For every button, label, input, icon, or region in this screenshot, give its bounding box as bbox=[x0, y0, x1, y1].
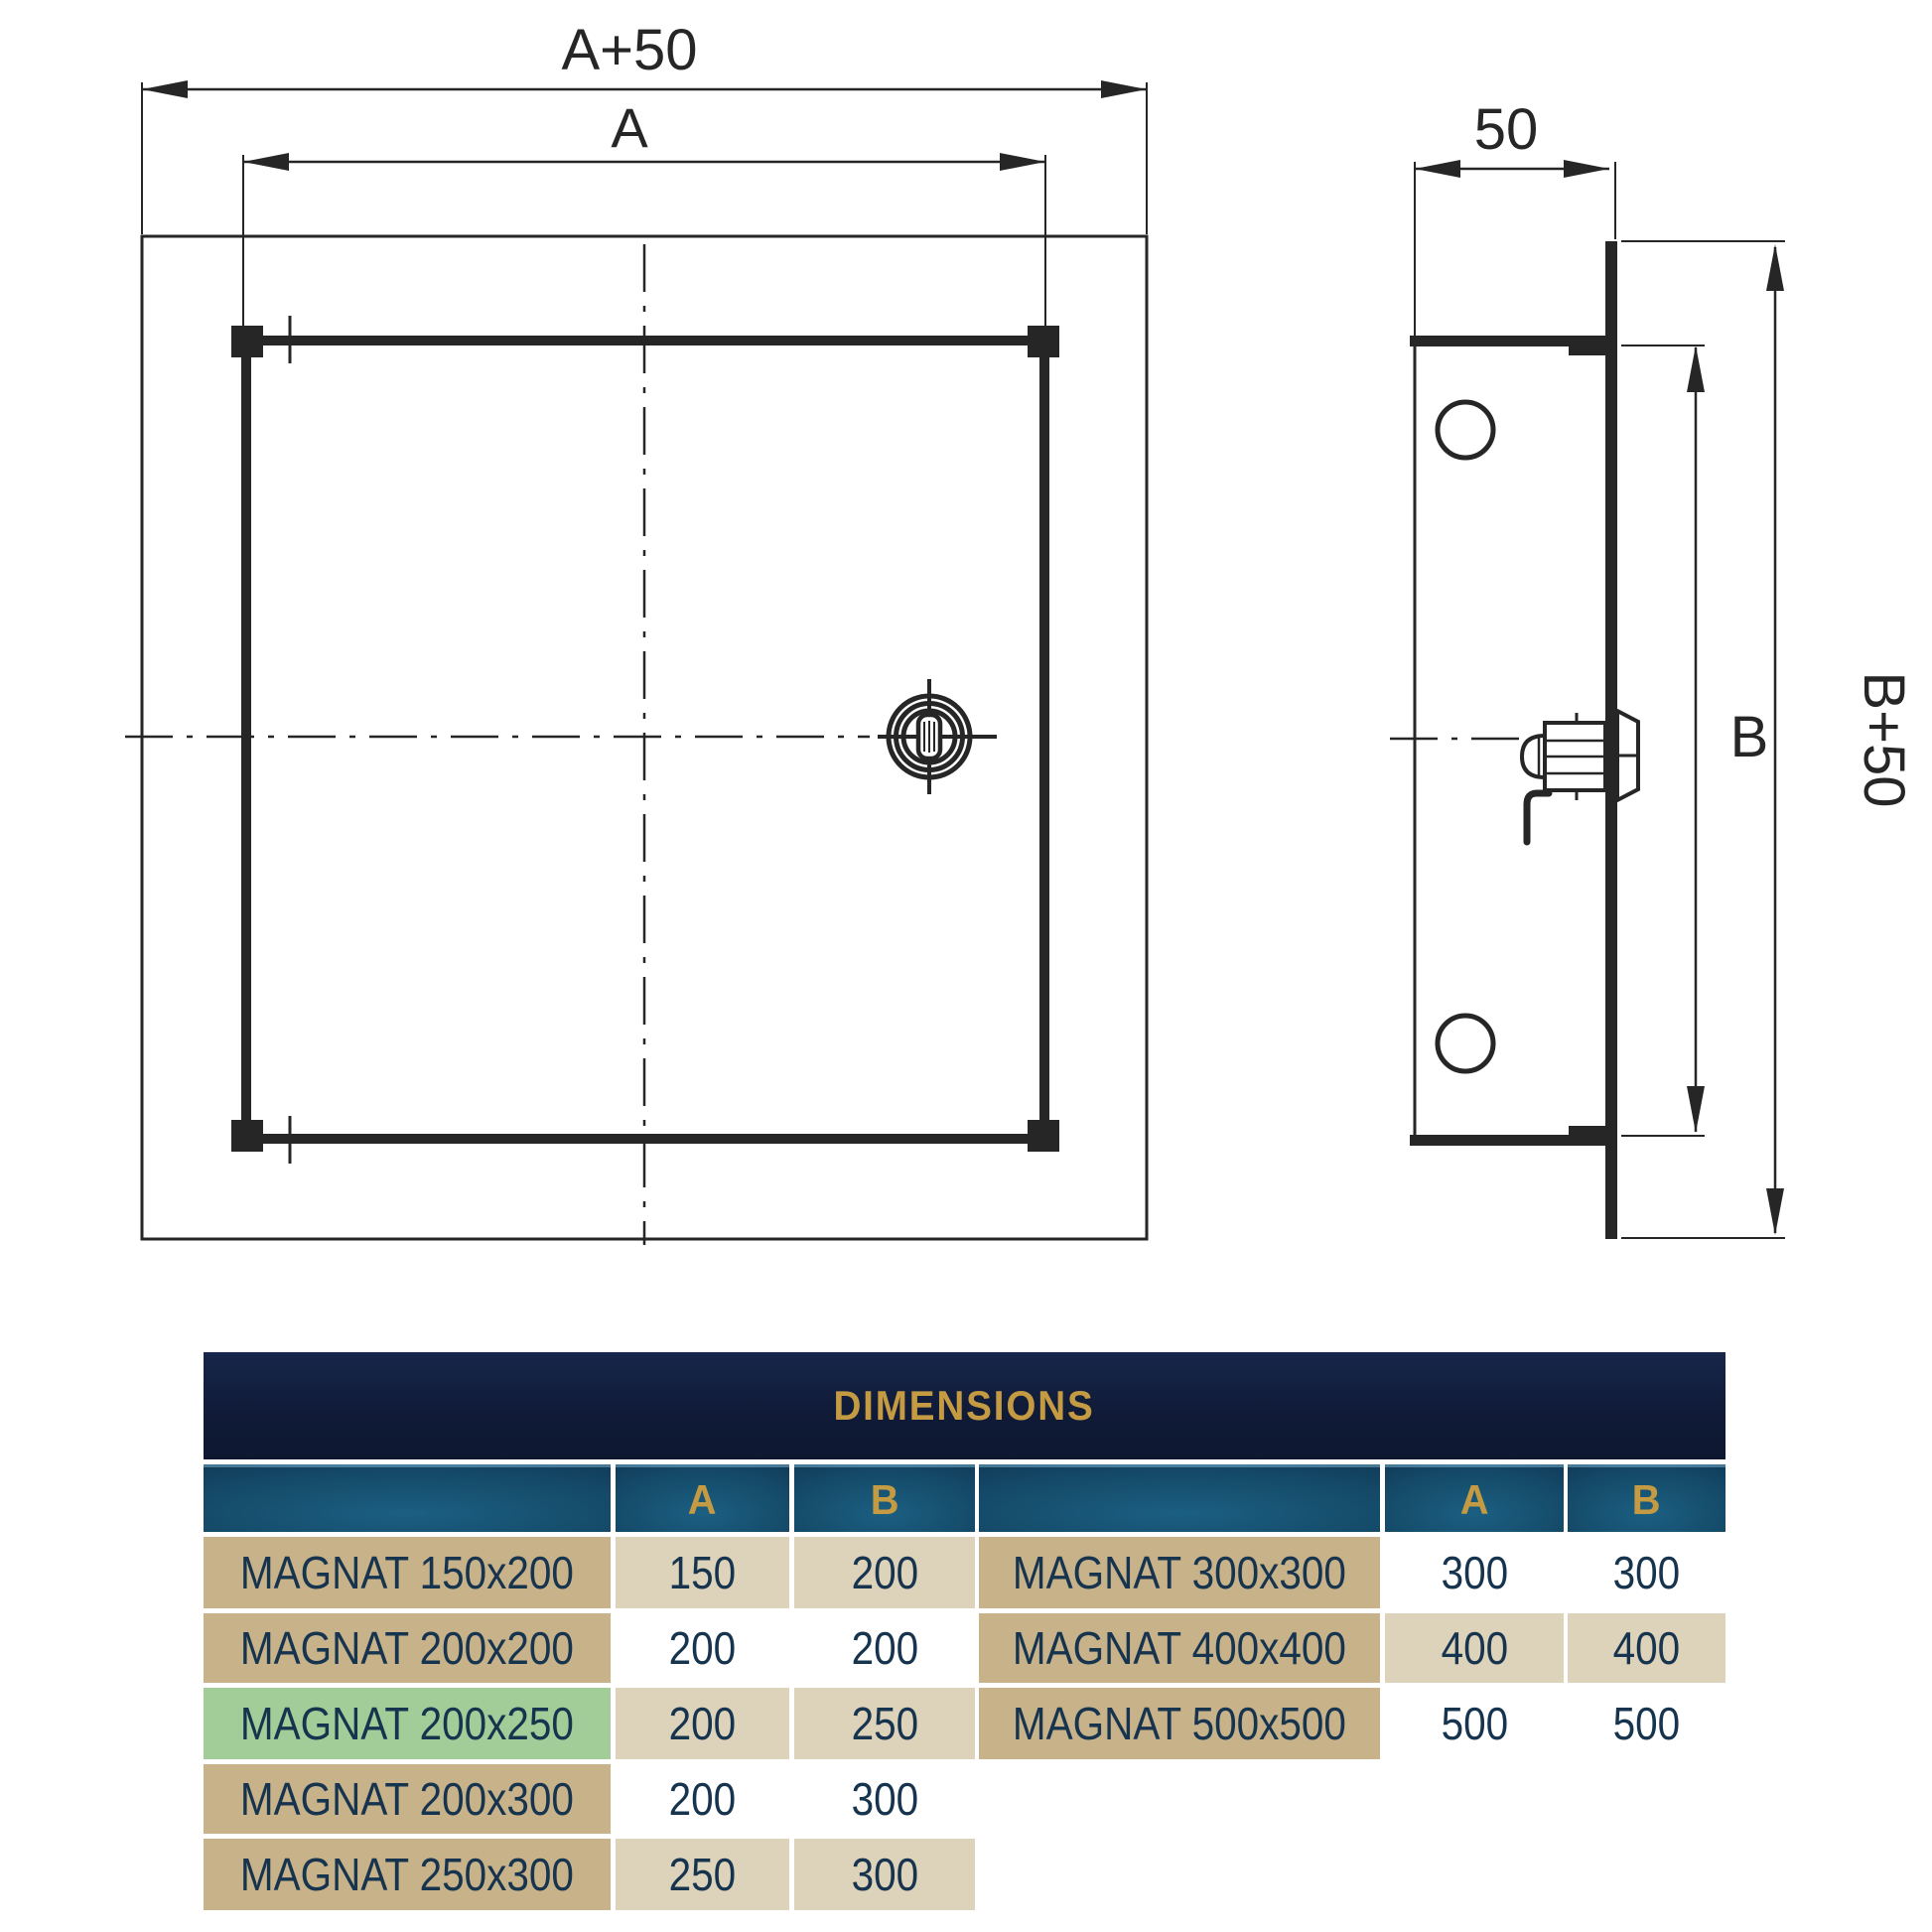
header-name-right bbox=[979, 1464, 1380, 1532]
mounting-hole-top bbox=[1438, 402, 1493, 458]
side-dim-inner: B bbox=[1621, 345, 1768, 1136]
front-view-drawing: A+50 A bbox=[125, 18, 1147, 1245]
header-b-right: B bbox=[1568, 1464, 1725, 1532]
value-a-cell: 400 bbox=[1385, 1613, 1564, 1683]
side-frame-bottom-bar bbox=[1410, 1135, 1609, 1146]
side-dim-depth: 50 bbox=[1415, 97, 1615, 338]
side-dim-outer: B+50 bbox=[1621, 241, 1916, 1238]
side-frame-top-bar bbox=[1410, 336, 1609, 346]
header-name-left bbox=[204, 1464, 611, 1532]
value-b-cell: 400 bbox=[1568, 1613, 1725, 1683]
value-b-cell: 300 bbox=[794, 1839, 975, 1910]
value-b-cell: 500 bbox=[1568, 1688, 1725, 1759]
value-a-cell: 200 bbox=[616, 1688, 789, 1759]
value-b-cell: 300 bbox=[794, 1764, 975, 1834]
value-b-cell: 200 bbox=[794, 1613, 975, 1683]
latch-mechanism bbox=[1522, 711, 1638, 842]
value-b-cell: 300 bbox=[1568, 1537, 1725, 1608]
model-name-cell: MAGNAT 150x200 bbox=[204, 1537, 611, 1608]
side-dim-inner-label: B bbox=[1730, 705, 1769, 769]
value-a-cell: 300 bbox=[1385, 1537, 1564, 1608]
model-name-cell-highlighted: MAGNAT 200x250 bbox=[204, 1688, 611, 1759]
model-name-cell: MAGNAT 200x300 bbox=[204, 1764, 611, 1834]
cam-lock bbox=[878, 679, 997, 794]
side-view-drawing: 50 B B+50 bbox=[1390, 97, 1916, 1239]
value-a-cell: 200 bbox=[616, 1613, 789, 1683]
value-b-cell: 250 bbox=[794, 1688, 975, 1759]
value-b-cell: 200 bbox=[794, 1537, 975, 1608]
mounting-hole-bottom bbox=[1438, 1016, 1493, 1071]
model-name-cell: MAGNAT 300x300 bbox=[979, 1537, 1380, 1608]
model-name-cell: MAGNAT 500x500 bbox=[979, 1688, 1380, 1759]
side-dim-depth-label: 50 bbox=[1474, 97, 1539, 162]
product-spec-sheet: A+50 A bbox=[0, 0, 1932, 1932]
technical-drawing: A+50 A bbox=[0, 0, 1932, 1350]
table-title: DIMENSIONS bbox=[834, 1382, 1095, 1430]
header-a-left: A bbox=[616, 1464, 789, 1532]
value-a-cell: 500 bbox=[1385, 1688, 1564, 1759]
model-name-cell: MAGNAT 250x300 bbox=[204, 1839, 611, 1910]
model-name-cell: MAGNAT 200x200 bbox=[204, 1613, 611, 1683]
value-a-cell: 150 bbox=[616, 1537, 789, 1608]
front-dim-inner-label: A bbox=[611, 96, 648, 159]
dimensions-table: DIMENSIONS A B A B MAGNAT 150x200 150 20… bbox=[204, 1352, 1725, 1910]
front-dim-inner: A bbox=[243, 96, 1045, 339]
table-title-bar: DIMENSIONS bbox=[204, 1352, 1725, 1459]
value-a-cell: 250 bbox=[616, 1839, 789, 1910]
value-a-cell: 200 bbox=[616, 1764, 789, 1834]
side-dim-outer-label: B+50 bbox=[1852, 671, 1916, 807]
model-name-cell: MAGNAT 400x400 bbox=[979, 1613, 1380, 1683]
latch-cam-bar bbox=[1527, 793, 1549, 842]
header-b-left: B bbox=[794, 1464, 975, 1532]
header-a-right: A bbox=[1385, 1464, 1564, 1532]
front-dim-outer-label: A+50 bbox=[561, 18, 697, 82]
